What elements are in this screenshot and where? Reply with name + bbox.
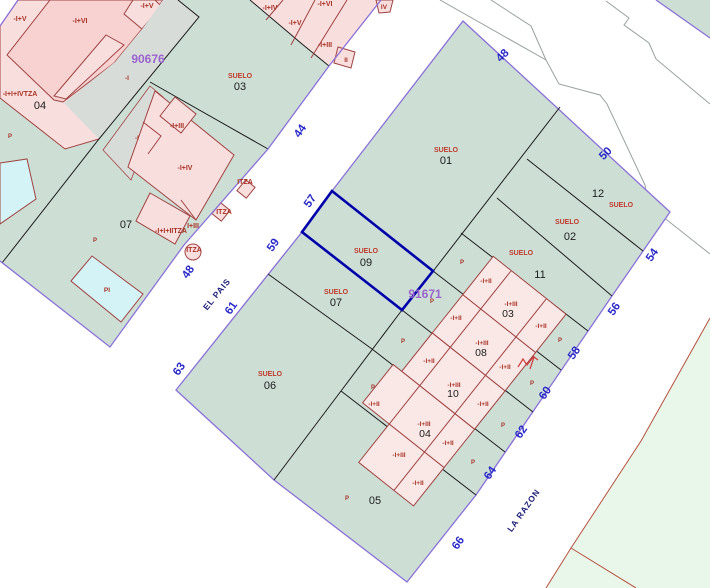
svg-text:SUELO: SUELO [258,371,283,378]
svg-text:-I+III: -I+III [170,123,184,130]
svg-text:09: 09 [360,257,372,269]
svg-text:-I+VI: -I+VI [318,1,333,8]
svg-text:03: 03 [234,81,246,93]
svg-text:P: P [558,338,562,344]
svg-text:-I+II: -I+II [535,323,547,330]
svg-text:P: P [501,423,505,429]
svg-text:-I+II: -I+II [423,358,435,365]
svg-text:-I+V: -I+V [13,16,26,23]
svg-text:-I+I+IVTZA: -I+I+IVTZA [3,91,38,98]
svg-text:SUELO: SUELO [228,73,253,80]
svg-text:07: 07 [330,297,342,309]
svg-text:-I+IV: -I+IV [263,5,278,12]
svg-text:-I+II: -I+II [477,401,489,408]
svg-text:PI: PI [104,287,110,294]
svg-text:SUELO: SUELO [509,250,534,257]
svg-text:-I+II: -I+II [499,364,511,371]
svg-text:91671: 91671 [408,287,442,301]
svg-text:11: 11 [534,269,545,281]
svg-text:SUELO: SUELO [609,202,634,209]
svg-text:P: P [430,299,434,305]
svg-text:06: 06 [264,380,276,392]
svg-text:ITZA: ITZA [186,247,202,254]
svg-text:03: 03 [502,308,514,320]
svg-text:-I+V: -I+V [288,20,301,27]
svg-text:P: P [345,496,349,502]
svg-text:08: 08 [475,347,487,359]
svg-text:IV: IV [381,4,388,11]
svg-text:12: 12 [592,188,604,200]
svg-text:-I+IV: -I+IV [178,165,193,172]
svg-text:SUELO: SUELO [434,147,459,154]
svg-text:-I+V: -I+V [140,3,153,10]
svg-text:-I: -I [135,135,139,142]
svg-text:-I+II: -I+II [412,480,424,487]
svg-text:-I+III: -I+III [475,340,488,347]
svg-text:ITZA: ITZA [216,209,232,216]
svg-text:-I: -I [125,75,129,82]
svg-text:-I+II: -I+II [450,315,462,322]
svg-text:-I+III: -I+III [392,452,405,459]
svg-text:10: 10 [447,388,459,400]
svg-text:90676: 90676 [131,52,165,66]
svg-text:-I+II: -I+II [480,278,492,285]
svg-text:SUELO: SUELO [354,248,379,255]
svg-text:04: 04 [34,100,46,112]
svg-text:07: 07 [120,219,132,231]
svg-text:-I+I+IITZA: -I+I+IITZA [155,228,187,235]
svg-text:P: P [8,134,12,140]
svg-text:I+III: I+III [187,223,199,230]
svg-text:-I+III: -I+III [504,301,517,308]
svg-text:P: P [530,381,534,387]
svg-text:-I+III: -I+III [417,421,430,428]
svg-text:05: 05 [369,495,381,507]
svg-text:P: P [93,238,97,244]
svg-text:-I+II: -I+II [368,401,380,408]
svg-text:ITZA: ITZA [237,179,253,186]
svg-text:-I+III: -I+III [318,42,332,49]
svg-text:P: P [371,385,375,391]
svg-text:II: II [344,57,348,64]
svg-text:-I+VI: -I+VI [73,18,88,25]
svg-text:P: P [460,260,464,266]
svg-text:02: 02 [564,231,576,243]
svg-text:P: P [401,339,405,345]
svg-text:P: P [471,460,475,466]
svg-text:SUELO: SUELO [555,219,580,226]
svg-text:04: 04 [419,428,431,440]
svg-text:SUELO: SUELO [324,289,349,296]
svg-text:-I+II: -I+II [442,440,454,447]
svg-text:01: 01 [440,155,452,167]
